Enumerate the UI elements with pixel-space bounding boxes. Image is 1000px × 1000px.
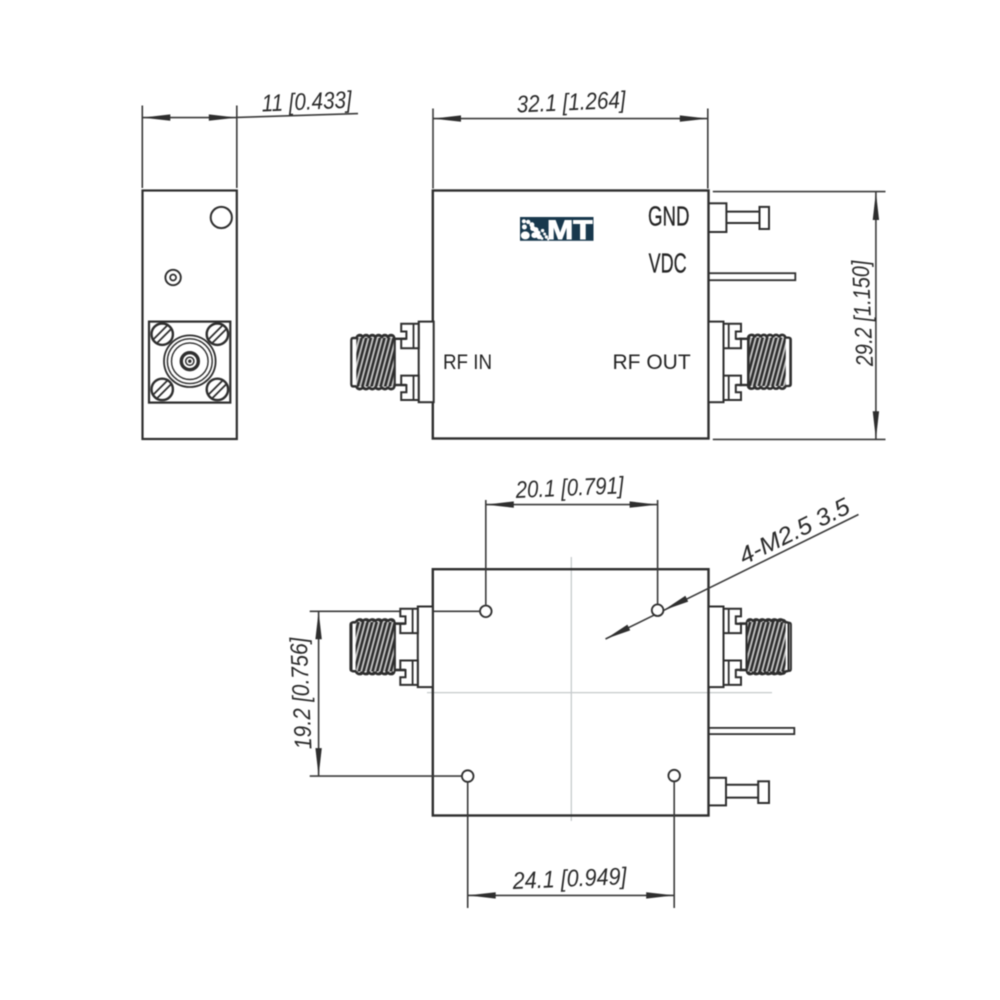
svg-text:19.2 [0.756]: 19.2 [0.756] <box>286 636 318 750</box>
svg-text:29.2 [1.150]: 29.2 [1.150] <box>847 259 879 368</box>
svg-text:20.1 [0.791]: 20.1 [0.791] <box>514 472 625 504</box>
svg-text:VDC: VDC <box>649 248 687 279</box>
svg-text:32.1 [1.264]: 32.1 [1.264] <box>516 87 627 119</box>
svg-text:GND: GND <box>648 201 690 232</box>
svg-text:24.1 [0.949]: 24.1 [0.949] <box>511 863 628 895</box>
svg-text:4-M2.5 3.5: 4-M2.5 3.5 <box>735 493 855 571</box>
svg-text:RF IN: RF IN <box>443 350 492 374</box>
svg-text:MT: MT <box>547 215 593 245</box>
svg-text:RF OUT: RF OUT <box>613 350 691 374</box>
svg-text:11 [0.433]: 11 [0.433] <box>261 87 353 118</box>
